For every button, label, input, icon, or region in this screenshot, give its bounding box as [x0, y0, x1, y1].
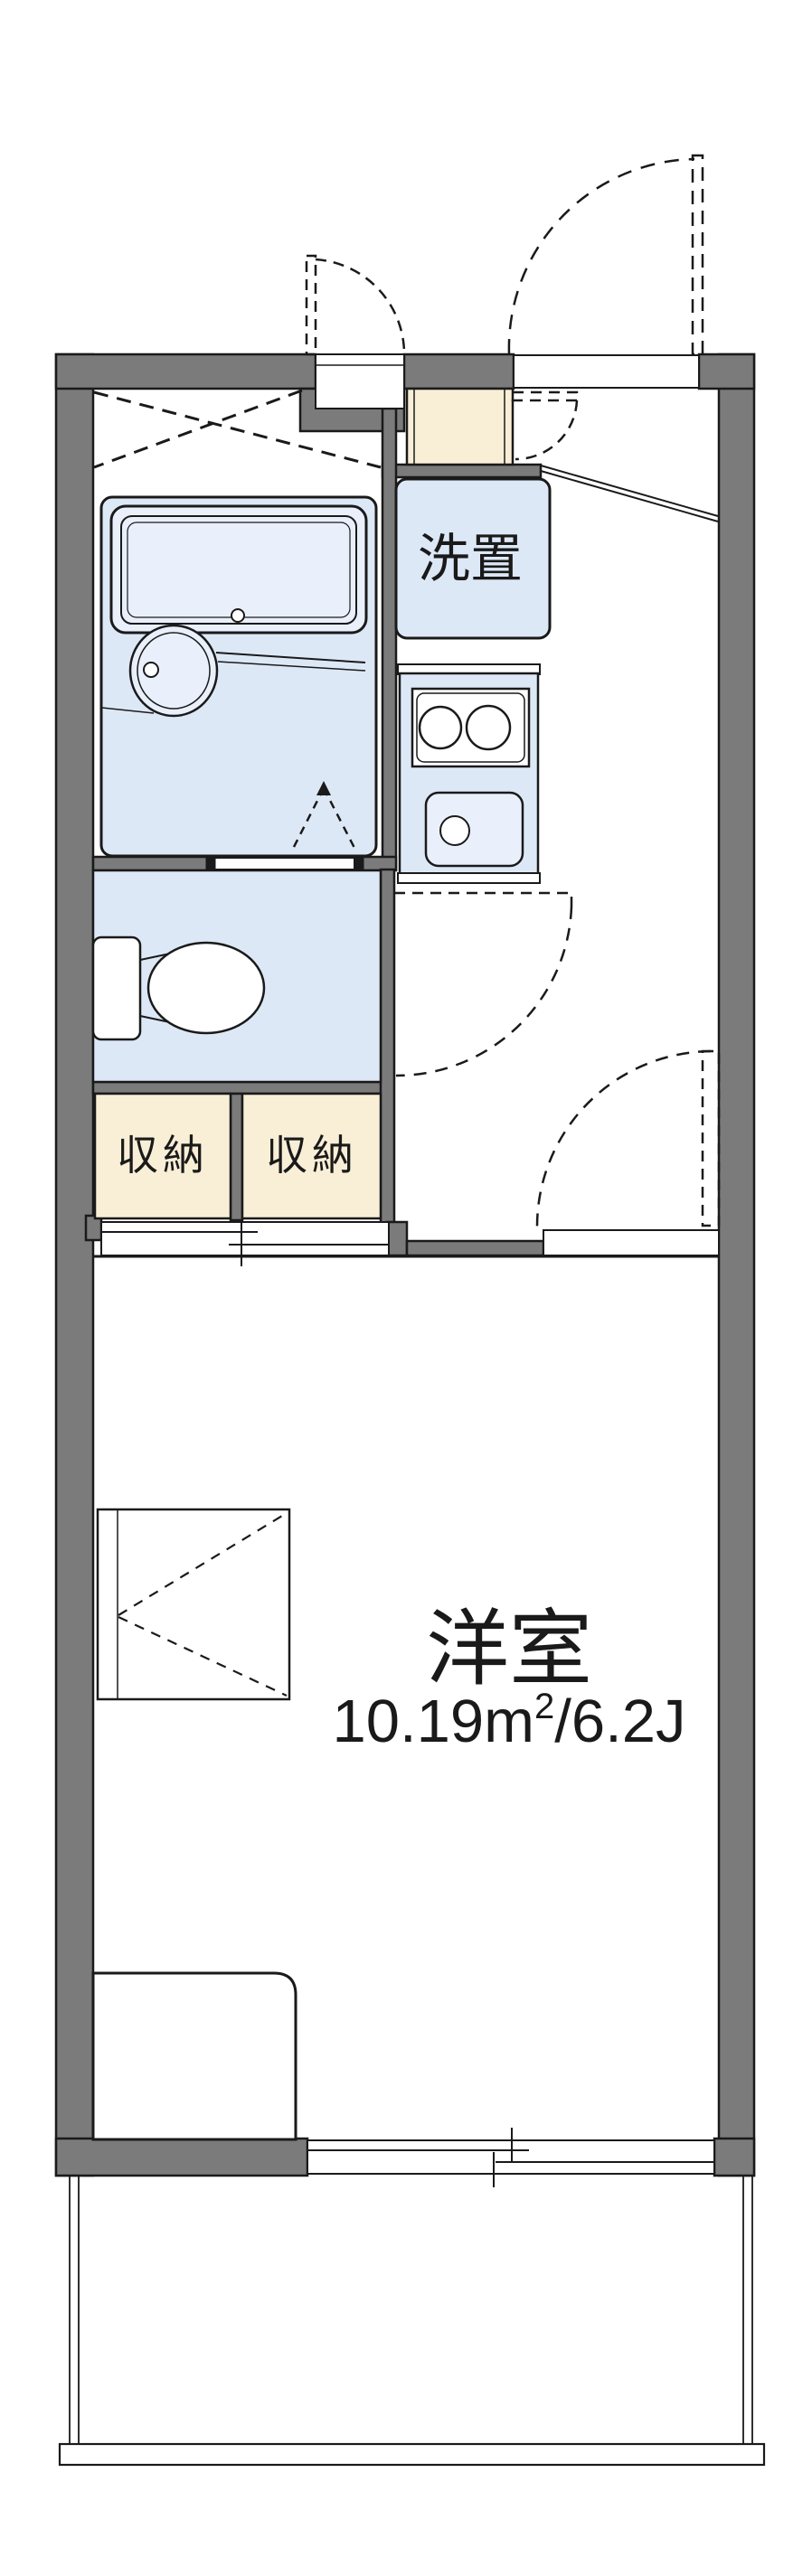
kitchen	[398, 664, 540, 883]
floor-plan: 洗置 収納 収納 洋室 10.19m2/6.2J	[0, 0, 812, 2576]
corridor-door-arc	[396, 907, 571, 1076]
burner-right	[467, 706, 510, 749]
main-room-area: 10.19m2/6.2J	[333, 1687, 686, 1755]
wall-bottom-right	[714, 2139, 754, 2176]
main-room-label: 洋室	[426, 1603, 592, 1696]
wall-top-right-corner	[699, 354, 754, 389]
washbasin-faucet	[144, 663, 158, 677]
wall-partition-bath	[382, 409, 396, 870]
bathroom-window-arc	[316, 259, 404, 354]
burner-left	[420, 707, 461, 748]
bathroom	[94, 390, 381, 856]
mainroom-door-opening	[543, 1230, 719, 1255]
wall-storage-divider	[231, 1094, 242, 1220]
storage-left-label: 収納	[117, 1132, 209, 1179]
bathroom-window-leaf	[307, 256, 316, 354]
area-superscript: 2	[534, 1687, 554, 1726]
balcony-slab	[60, 2444, 764, 2465]
mainroom-door-leaf	[703, 1051, 719, 1226]
closet-window-symbol	[98, 1509, 289, 1699]
area-value: 10.19m	[333, 1688, 534, 1755]
storage-right-label: 収納	[266, 1132, 358, 1179]
bed	[93, 1973, 296, 2139]
main-room	[93, 1509, 296, 2139]
corridor-door-leaf	[394, 893, 571, 907]
entrance-door-arc	[509, 159, 694, 353]
bathroom-window-opening	[316, 354, 404, 409]
entrance-door-leaf	[693, 155, 703, 354]
toilet-tank	[93, 937, 140, 1039]
wall-bottom-left	[56, 2139, 307, 2176]
wall-mainroom-north	[407, 1241, 543, 1255]
wall-top-left	[56, 354, 316, 389]
wall-right	[719, 354, 754, 2176]
wall-toilet-south	[93, 1082, 382, 1094]
entrance-hall	[541, 465, 718, 522]
wall-jamb-storage	[387, 1222, 407, 1255]
balcony	[60, 2176, 764, 2465]
toilet	[93, 937, 264, 1039]
washroom-door-leaf	[513, 392, 577, 400]
floor-plan-drawing: 洗置 収納 収納 洋室 10.19m2/6.2J	[0, 0, 812, 2576]
bathtub-drain	[231, 609, 244, 622]
toilet-bowl	[148, 943, 264, 1033]
area-rest: /6.2J	[554, 1688, 685, 1755]
wall-left	[56, 354, 93, 2176]
entrance-opening	[514, 355, 699, 388]
mainroom-door-arc	[537, 1051, 711, 1227]
wall-partition-corridor	[381, 870, 394, 1255]
entrance-step-edge	[541, 465, 718, 522]
sink-drain	[440, 816, 469, 845]
kitchen-base-rail	[398, 873, 540, 883]
wall-genkan-band	[382, 465, 541, 477]
bath-door-opening	[214, 858, 354, 870]
genkan-step	[407, 389, 513, 465]
washing-area-label: 洗置	[418, 530, 523, 588]
wall-top-middle	[404, 354, 514, 389]
washroom-door-arc	[515, 400, 577, 459]
storage-sliding-doors	[101, 1222, 389, 1255]
